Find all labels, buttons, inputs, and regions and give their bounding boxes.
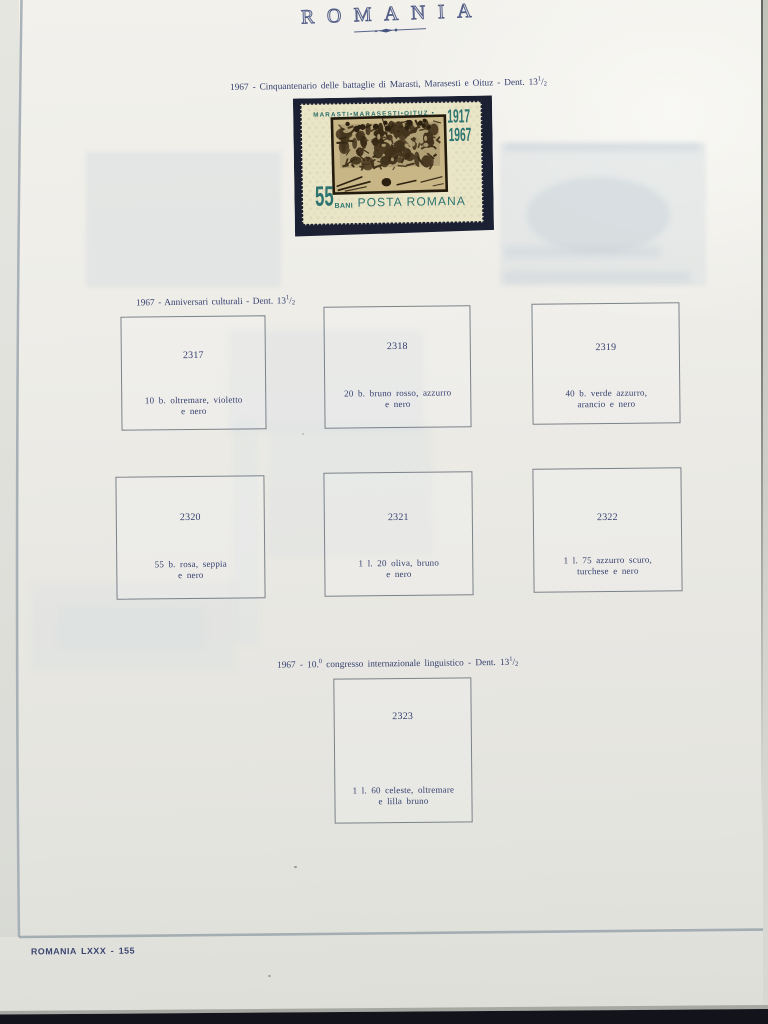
svg-text:BANI: BANI <box>335 202 353 209</box>
svg-text:1967: 1967 <box>448 124 471 146</box>
svg-text:55: 55 <box>315 180 334 212</box>
svg-text:POSTA ROMANA: POSTA ROMANA <box>357 194 466 210</box>
